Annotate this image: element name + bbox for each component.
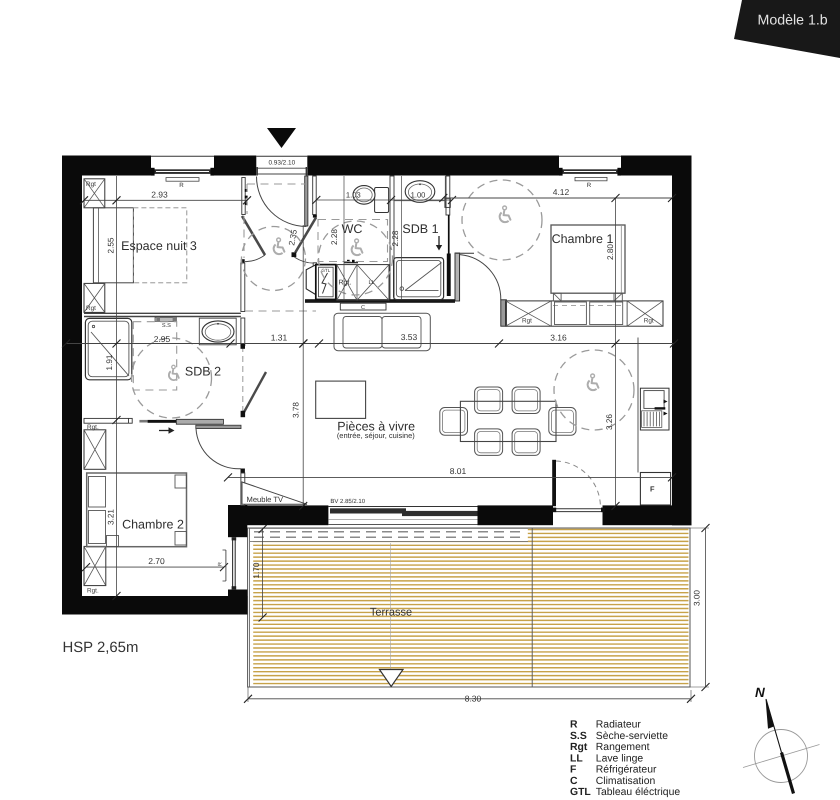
svg-text:Terrasse: Terrasse <box>370 607 412 619</box>
svg-text:3.00: 3.00 <box>692 590 701 606</box>
svg-text:SDB 1: SDB 1 <box>402 222 438 236</box>
svg-text:2.28: 2.28 <box>391 230 400 246</box>
svg-text:SDB 2: SDB 2 <box>185 365 221 379</box>
svg-text:R: R <box>179 182 184 189</box>
svg-text:GTL: GTL <box>321 268 330 273</box>
svg-text:1.70: 1.70 <box>252 562 261 578</box>
svg-text:F: F <box>570 765 576 776</box>
svg-text:BV 2.85/2.10: BV 2.85/2.10 <box>330 498 365 505</box>
svg-text:Rgt.: Rgt. <box>87 588 99 595</box>
svg-text:3.78: 3.78 <box>291 402 300 418</box>
svg-text:LL: LL <box>369 280 375 286</box>
svg-text:1.03: 1.03 <box>346 191 361 200</box>
svg-text:3.53: 3.53 <box>401 332 418 342</box>
svg-text:R: R <box>570 720 578 731</box>
svg-text:8.30: 8.30 <box>465 693 482 703</box>
svg-text:Radiateur: Radiateur <box>596 720 642 731</box>
svg-text:Sèche-serviette: Sèche-serviette <box>596 731 668 742</box>
svg-text:3.26: 3.26 <box>605 414 614 430</box>
svg-text:S.S: S.S <box>162 323 171 329</box>
svg-text:2.55: 2.55 <box>107 237 116 253</box>
svg-text:Chambre 1: Chambre 1 <box>552 232 614 246</box>
svg-text:R: R <box>587 182 592 189</box>
svg-text:(entrée, séjour, cuisine): (entrée, séjour, cuisine) <box>337 431 415 440</box>
svg-text:Rgt.: Rgt. <box>339 279 352 286</box>
svg-text:GTL: GTL <box>570 787 591 798</box>
svg-text:Rgt: Rgt <box>570 742 588 753</box>
svg-text:Réfrigérateur: Réfrigérateur <box>596 765 657 776</box>
svg-text:Rgt: Rgt <box>86 305 96 312</box>
svg-text:3.21: 3.21 <box>107 509 116 525</box>
svg-text:Rgt.: Rgt. <box>87 424 99 431</box>
svg-text:Espace nuit 3: Espace nuit 3 <box>121 239 197 253</box>
svg-text:1.00: 1.00 <box>411 191 426 200</box>
svg-text:Rgt: Rgt <box>86 181 96 188</box>
svg-text:WC: WC <box>342 222 363 236</box>
svg-text:C: C <box>361 305 365 311</box>
svg-text:4.12: 4.12 <box>553 187 570 197</box>
svg-text:Meuble TV: Meuble TV <box>247 495 285 504</box>
svg-text:HSP 2,65m: HSP 2,65m <box>63 640 139 656</box>
svg-text:Tableau éléctrique: Tableau éléctrique <box>596 787 681 798</box>
svg-text:Rgt: Rgt <box>522 318 532 325</box>
svg-text:1.31: 1.31 <box>271 332 288 342</box>
svg-text:2.93: 2.93 <box>151 189 168 199</box>
svg-text:S.S: S.S <box>570 731 587 742</box>
svg-text:F: F <box>650 485 655 494</box>
svg-text:R: R <box>218 562 224 566</box>
svg-text:Lave linge: Lave linge <box>596 753 644 764</box>
svg-text:2.70: 2.70 <box>148 556 165 566</box>
svg-text:1.91: 1.91 <box>105 354 114 370</box>
svg-text:Chambre 2: Chambre 2 <box>122 517 184 531</box>
svg-text:Rgt: Rgt <box>644 318 654 325</box>
svg-text:Modèle 1.b: Modèle 1.b <box>758 13 828 29</box>
svg-text:2.28: 2.28 <box>330 229 339 245</box>
svg-text:0.93/2.10: 0.93/2.10 <box>268 159 295 166</box>
svg-text:8.01: 8.01 <box>450 466 467 476</box>
svg-text:C: C <box>570 776 578 787</box>
svg-text:LL: LL <box>570 753 583 764</box>
svg-text:Rangement: Rangement <box>596 742 650 753</box>
svg-text:3.16: 3.16 <box>550 332 567 342</box>
svg-text:N: N <box>755 685 765 700</box>
svg-text:Climatisation: Climatisation <box>596 776 656 787</box>
svg-text:2.95: 2.95 <box>154 334 171 344</box>
